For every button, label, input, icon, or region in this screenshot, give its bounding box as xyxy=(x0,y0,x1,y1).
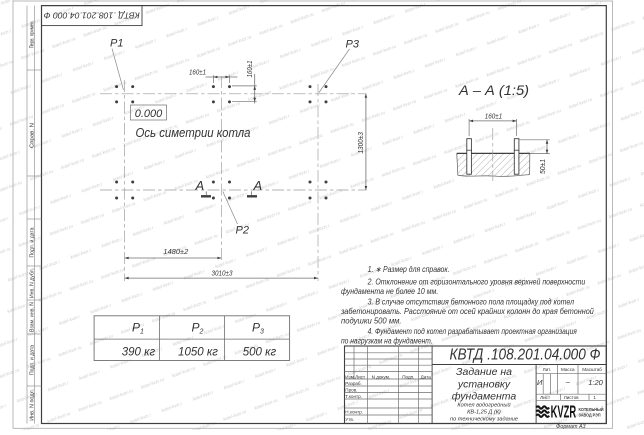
svg-text:160±1: 160±1 xyxy=(485,112,503,121)
svg-text:500 кг: 500 кг xyxy=(243,347,277,359)
svg-text:P3: P3 xyxy=(346,39,360,51)
svg-text:50±1: 50±1 xyxy=(538,159,547,174)
svg-text:1480±2: 1480±2 xyxy=(163,247,189,256)
svg-text:P1: P1 xyxy=(110,38,123,50)
svg-text:Взам. инв. N: Взам. инв. N xyxy=(30,302,36,332)
svg-text:Т.контр.: Т.контр. xyxy=(345,394,362,399)
svg-text:Формат А3: Формат А3 xyxy=(556,424,586,430)
svg-text:фундамента: фундамента xyxy=(452,391,517,403)
svg-text:А: А xyxy=(253,178,263,193)
svg-text:забетонировать. Расстояние от: забетонировать. Расстояние от осей крайн… xyxy=(340,307,594,316)
svg-text:подушки 500 мм.: подушки 500 мм. xyxy=(341,317,402,326)
svg-text:А: А xyxy=(195,178,205,193)
svg-text:N докум.: N докум. xyxy=(372,374,391,379)
svg-text:Утв.: Утв. xyxy=(345,417,354,422)
svg-text:А – А (1:5): А – А (1:5) xyxy=(458,83,529,98)
svg-text:Пров.: Пров. xyxy=(345,388,357,393)
svg-text:Изм.Лист: Изм.Лист xyxy=(345,374,366,379)
svg-text:Подп.: Подп. xyxy=(402,374,414,379)
svg-text:3. В случае отсутствия бетонно: 3. В случае отсутствия бетонного пола пл… xyxy=(368,297,575,306)
svg-text:1. ∗ Размер для справок.: 1. ∗ Размер для справок. xyxy=(368,265,450,274)
svg-text:Лист: Лист xyxy=(540,395,551,400)
svg-text:по нагрузкам на фундамент.: по нагрузкам на фундамент. xyxy=(341,337,433,346)
svg-text:установку: установку xyxy=(457,379,511,391)
svg-text:Подп. и дата: Подп. и дата xyxy=(30,227,36,257)
svg-text:Разраб.: Разраб. xyxy=(345,381,362,386)
svg-text:Ось симетрии котла: Ось симетрии котла xyxy=(136,126,251,140)
svg-text:Масштаб: Масштаб xyxy=(582,367,602,372)
svg-text:И: И xyxy=(537,378,543,387)
svg-text:KVZR: KVZR xyxy=(551,401,577,421)
svg-text:КВТД .108.201.04.000 Ф: КВТД .108.201.04.000 Ф xyxy=(450,347,601,364)
svg-text:160±1: 160±1 xyxy=(189,68,206,77)
svg-text:Масса: Масса xyxy=(561,367,575,372)
svg-text:P2: P2 xyxy=(236,225,249,237)
svg-text:Инв. N дубл.: Инв. N дубл. xyxy=(30,268,36,298)
svg-text:0.000: 0.000 xyxy=(135,108,163,120)
svg-text:1300±3: 1300±3 xyxy=(356,131,365,153)
svg-text:Задание на: Задание на xyxy=(456,366,512,378)
svg-text:Подп. и дата: Подп. и дата xyxy=(30,345,36,375)
svg-text:2. Отклонение от горизонтально: 2. Отклонение от горизонтального уровня … xyxy=(367,278,586,287)
svg-text:Котел водогрейный: Котел водогрейный xyxy=(457,401,510,408)
svg-text:Инв. N подл.: Инв. N подл. xyxy=(30,389,36,421)
svg-text:1: 1 xyxy=(593,395,596,400)
svg-text:ЗАВОД РЭП: ЗАВОД РЭП xyxy=(579,412,601,417)
svg-text:фундамента не более 10 мм.: фундамента не более 10 мм. xyxy=(341,287,438,296)
svg-text:Лит.: Лит. xyxy=(543,367,552,372)
svg-text:КОТЕЛЬНЫЙ: КОТЕЛЬНЫЙ xyxy=(579,405,604,412)
svg-text:КВ-1,25 Д (К): КВ-1,25 Д (К) xyxy=(467,409,501,415)
svg-text:Листов: Листов xyxy=(564,395,579,400)
svg-text:160±1: 160±1 xyxy=(245,60,254,77)
svg-text:по техническому задание: по техническому задание xyxy=(450,416,518,422)
svg-text:КВТД .108.201.04.000 Ф: КВТД .108.201.04.000 Ф xyxy=(44,10,140,20)
svg-text:Перв. примен.: Перв. примен. xyxy=(30,20,36,48)
svg-text:Дата: Дата xyxy=(421,374,432,379)
svg-text:Н.контр.: Н.контр. xyxy=(345,410,363,415)
svg-text:390 кг: 390 кг xyxy=(122,347,156,359)
svg-text:1:20: 1:20 xyxy=(588,378,603,387)
svg-text:3010±3: 3010±3 xyxy=(212,269,234,278)
svg-text:–: – xyxy=(565,377,571,386)
svg-text:Справ. N: Справ. N xyxy=(30,123,36,148)
svg-text:1050 кг: 1050 кг xyxy=(178,347,218,359)
svg-text:4. Фундамент под котел разраба: 4. Фундамент под котел разрабатывает про… xyxy=(368,327,578,336)
